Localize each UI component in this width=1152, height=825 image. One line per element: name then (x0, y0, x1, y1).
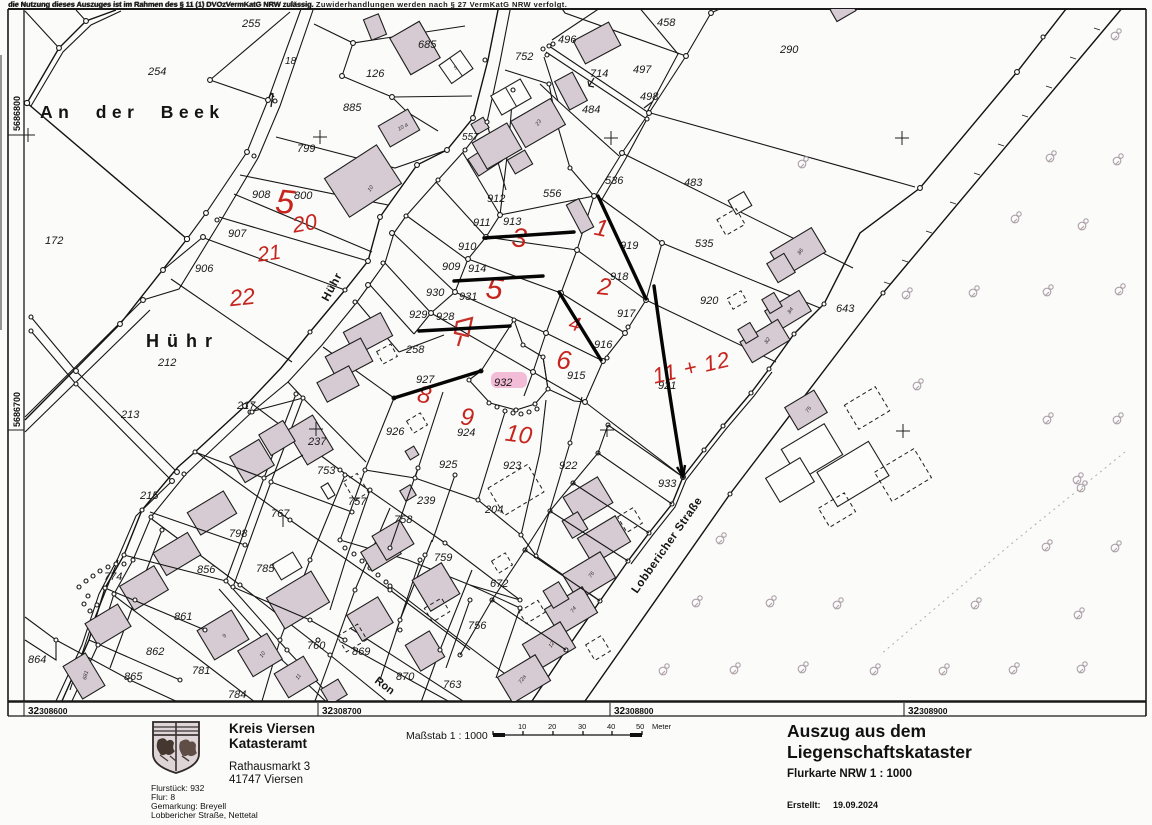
svg-text:536: 536 (605, 175, 624, 187)
svg-text:484: 484 (582, 104, 600, 116)
svg-text:458: 458 (657, 17, 676, 29)
svg-text:217: 217 (236, 400, 256, 412)
svg-text:20: 20 (289, 209, 319, 238)
svg-text:213: 213 (120, 409, 140, 421)
svg-text:865: 865 (124, 671, 143, 683)
svg-text:799: 799 (297, 143, 315, 155)
svg-text:920: 920 (700, 295, 719, 307)
svg-text:933: 933 (658, 478, 677, 490)
svg-text:862: 862 (146, 646, 164, 658)
svg-text:239: 239 (416, 495, 435, 507)
svg-text:290: 290 (779, 44, 799, 56)
svg-text:215: 215 (139, 490, 159, 502)
svg-text:32308700: 32308700 (322, 706, 362, 717)
svg-text:925: 925 (439, 459, 458, 471)
svg-text:785: 785 (256, 563, 275, 575)
svg-text:9: 9 (459, 403, 475, 431)
svg-text:763: 763 (443, 679, 462, 691)
svg-text:916: 916 (594, 339, 613, 351)
svg-text:172: 172 (45, 235, 63, 247)
svg-text:774: 774 (104, 571, 122, 583)
svg-text:918: 918 (610, 271, 629, 283)
svg-text:910: 910 (458, 241, 477, 253)
svg-text:An der Beek: An der Beek (40, 102, 225, 122)
svg-text:784: 784 (228, 689, 246, 701)
svg-text:255: 255 (241, 18, 261, 30)
svg-text:922: 922 (559, 460, 577, 472)
svg-text:931: 931 (459, 291, 477, 303)
svg-text:912: 912 (487, 193, 505, 205)
svg-text:126: 126 (366, 68, 385, 80)
svg-text:752: 752 (515, 51, 533, 63)
svg-text:798: 798 (229, 528, 248, 540)
svg-text:923: 923 (503, 460, 522, 472)
svg-text:Erstellt:: Erstellt: (787, 800, 821, 810)
svg-text:856: 856 (197, 564, 216, 576)
svg-text:498: 498 (640, 91, 659, 103)
svg-text:869: 869 (352, 646, 370, 658)
svg-text:758: 758 (394, 514, 413, 526)
svg-text:800: 800 (294, 190, 313, 202)
svg-text:30: 30 (578, 722, 586, 731)
svg-text:10: 10 (518, 722, 526, 731)
svg-text:21: 21 (255, 241, 282, 267)
svg-text:die Nutzung dieses Auszuges is: die Nutzung dieses Auszuges ist im Rahme… (9, 0, 314, 9)
svg-text:Maßstab 1 : 1000: Maßstab 1 : 1000 (406, 730, 488, 742)
svg-text:Flurkarte NRW 1 : 1000: Flurkarte NRW 1 : 1000 (787, 768, 912, 780)
svg-text:864: 864 (28, 654, 46, 666)
svg-text:535: 535 (695, 238, 714, 250)
svg-text:Lobbericher Straße, Nettetal: Lobbericher Straße, Nettetal (151, 810, 258, 820)
svg-text:3: 3 (511, 222, 528, 253)
svg-text:Kreis Viersen: Kreis Viersen (229, 721, 315, 736)
svg-text:50: 50 (636, 722, 644, 731)
svg-text:759: 759 (434, 552, 452, 564)
svg-text:Auszug aus dem: Auszug aus dem (787, 721, 926, 741)
svg-text:32308600: 32308600 (28, 706, 68, 717)
svg-text:Katasteramt: Katasteramt (229, 736, 308, 751)
svg-text:932: 932 (494, 377, 512, 389)
svg-text:40: 40 (607, 722, 615, 731)
svg-text:757: 757 (348, 496, 367, 508)
svg-text:212: 212 (157, 357, 176, 369)
svg-text:929: 929 (409, 309, 427, 321)
svg-text:22: 22 (227, 283, 256, 312)
svg-text:2: 2 (595, 273, 612, 301)
svg-text:10: 10 (504, 420, 535, 451)
svg-text:Liegenschaftskataster: Liegenschaftskataster (787, 742, 972, 762)
svg-text:5686700: 5686700 (12, 392, 22, 427)
svg-text:Rathausmarkt 3: Rathausmarkt 3 (229, 761, 310, 773)
svg-text:20: 20 (548, 722, 556, 731)
svg-text:767: 767 (271, 508, 290, 520)
svg-text:870: 870 (396, 671, 415, 683)
svg-text:557: 557 (462, 132, 479, 143)
svg-text:930: 930 (426, 287, 445, 299)
svg-text:18: 18 (285, 56, 297, 67)
svg-text:258: 258 (405, 344, 425, 356)
svg-text:756: 756 (468, 620, 487, 632)
svg-text:928: 928 (436, 311, 455, 323)
svg-text:Hühr: Hühr (320, 271, 345, 304)
svg-text:915: 915 (567, 370, 586, 382)
svg-text:753: 753 (317, 465, 336, 477)
svg-text:5686800: 5686800 (12, 96, 22, 131)
svg-text:Meter: Meter (652, 722, 672, 731)
svg-text:497: 497 (633, 64, 652, 76)
svg-text:685: 685 (418, 39, 437, 51)
svg-text:908: 908 (252, 189, 271, 201)
svg-text:926: 926 (386, 426, 405, 438)
svg-text:781: 781 (192, 665, 210, 677)
svg-text:496: 496 (558, 34, 577, 46)
svg-text:643: 643 (836, 303, 855, 315)
svg-text:32308900: 32308900 (908, 706, 948, 717)
svg-text:483: 483 (684, 177, 703, 189)
svg-text:914: 914 (468, 263, 486, 275)
svg-text:19.09.2024: 19.09.2024 (833, 800, 878, 810)
svg-text:917: 917 (617, 308, 636, 320)
svg-text:32308800: 32308800 (614, 706, 654, 717)
svg-text:Hühr: Hühr (146, 331, 220, 351)
svg-text:237: 237 (307, 436, 327, 448)
svg-text:714: 714 (590, 68, 608, 80)
svg-text:885: 885 (343, 102, 362, 114)
svg-text:556: 556 (543, 188, 562, 200)
svg-text:Ron: Ron (372, 675, 397, 698)
svg-text:41747 Viersen: 41747 Viersen (229, 774, 303, 786)
svg-text:909: 909 (442, 261, 460, 273)
svg-text:204: 204 (484, 504, 503, 516)
svg-text:906: 906 (195, 263, 214, 275)
svg-text:907: 907 (228, 228, 247, 240)
svg-text:254: 254 (147, 66, 166, 78)
svg-text:861: 861 (174, 611, 192, 623)
svg-text:911: 911 (473, 217, 491, 229)
svg-text:760: 760 (307, 640, 326, 652)
